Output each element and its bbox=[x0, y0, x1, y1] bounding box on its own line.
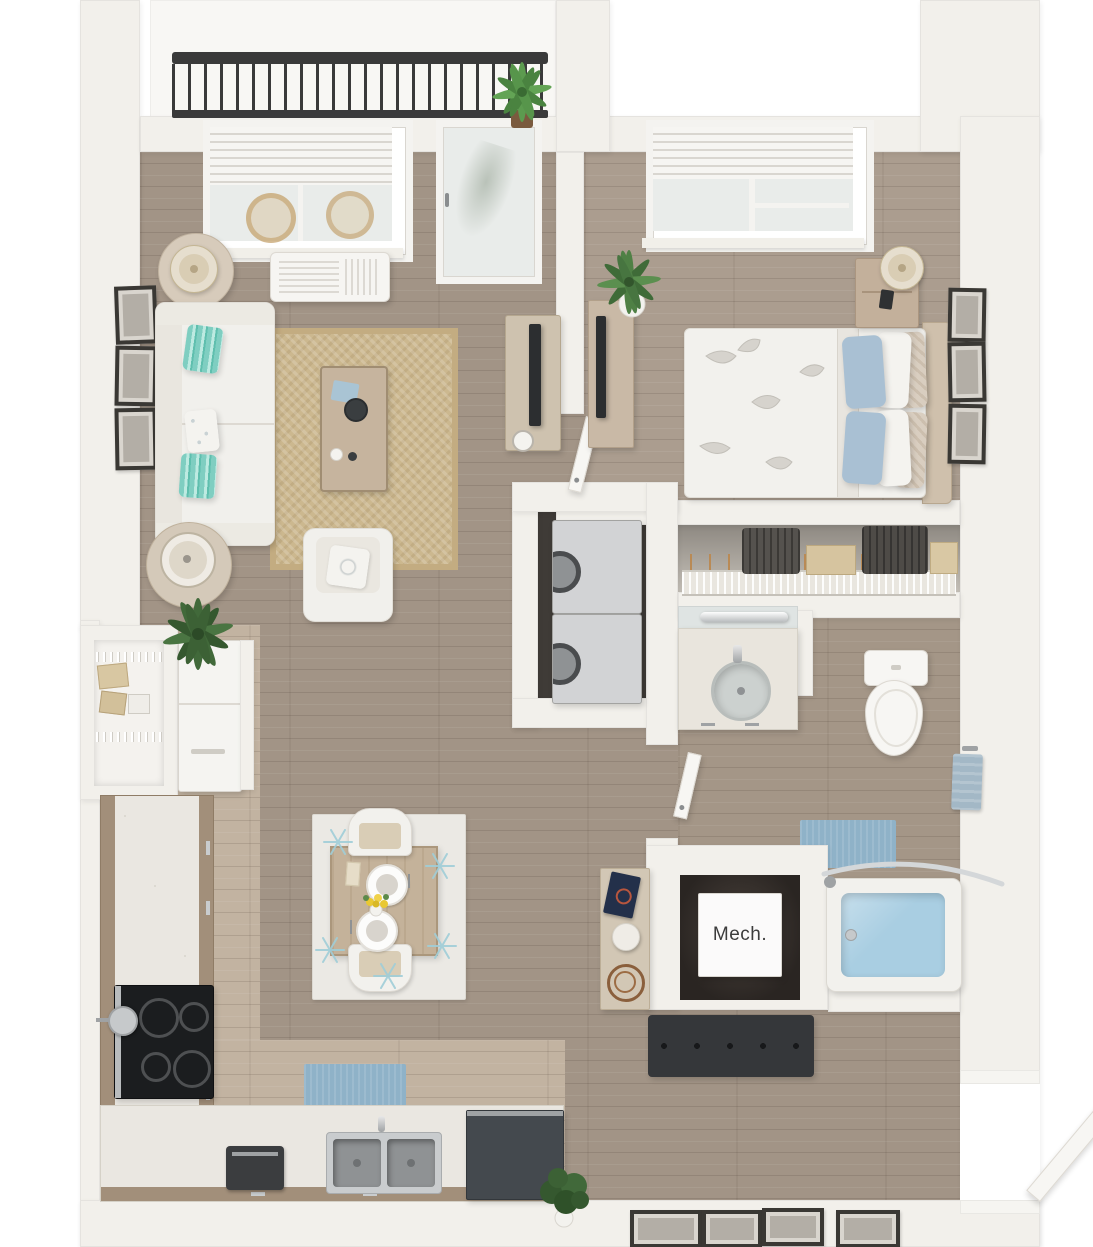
leaning-frame bbox=[762, 1208, 824, 1246]
lamp-finial bbox=[190, 265, 198, 273]
wall-balcony-right bbox=[556, 0, 610, 152]
vanity-handle bbox=[701, 723, 715, 726]
wall-frame bbox=[948, 288, 987, 343]
balcony-railing-balusters bbox=[172, 64, 548, 112]
stacked-dryer bbox=[552, 614, 642, 704]
wall-bath-west-upper bbox=[646, 482, 678, 745]
entry-jamb bbox=[960, 1200, 1040, 1214]
rattan-chair-reflection bbox=[326, 191, 374, 239]
door-handle bbox=[445, 193, 449, 207]
pan-handle bbox=[96, 1018, 110, 1022]
table-lamp-glass bbox=[160, 532, 216, 588]
leaning-frame bbox=[702, 1210, 762, 1247]
balcony-glass-door bbox=[436, 120, 542, 284]
decor-cup bbox=[348, 452, 357, 461]
chair-cushion bbox=[359, 951, 401, 977]
bathroom-vanity bbox=[678, 628, 798, 730]
vanity-handle bbox=[745, 723, 759, 726]
sofa-arm bbox=[156, 303, 274, 325]
refrigerator-divider bbox=[179, 703, 241, 705]
desk bbox=[588, 300, 634, 448]
silverware bbox=[408, 874, 410, 888]
cabinet-end-panel bbox=[240, 640, 254, 790]
ac-louvers bbox=[345, 259, 381, 295]
armchair bbox=[303, 528, 393, 622]
burner bbox=[141, 1052, 171, 1082]
dining-chair bbox=[348, 808, 412, 856]
book-emblem bbox=[614, 887, 633, 906]
sink-basin bbox=[333, 1139, 381, 1187]
cabinet-handle bbox=[251, 1192, 265, 1196]
stacked-washer bbox=[552, 520, 642, 614]
toilet-flush-button bbox=[891, 665, 901, 670]
entry-opening bbox=[960, 1082, 1040, 1202]
table-lamp bbox=[170, 245, 218, 293]
pantry-wire-shelf bbox=[96, 652, 162, 662]
dishwasher bbox=[466, 1110, 564, 1200]
washer-door bbox=[552, 551, 581, 593]
bedroom-window bbox=[646, 120, 874, 252]
bed-pillow-blue bbox=[842, 335, 887, 410]
lamp-finial bbox=[898, 264, 906, 272]
bathtub bbox=[826, 878, 962, 992]
floorplan-stage: Mech. bbox=[0, 0, 1093, 1247]
decor-cup bbox=[330, 448, 343, 461]
vanity-light-bar bbox=[700, 612, 788, 622]
chair-cushion bbox=[359, 823, 401, 849]
phone bbox=[879, 289, 895, 310]
tub-faucet bbox=[845, 929, 857, 941]
wall-frame bbox=[947, 342, 986, 403]
entry-jamb bbox=[960, 1070, 1040, 1084]
decor-clock bbox=[512, 430, 534, 452]
coffee-maker-trim bbox=[232, 1152, 278, 1156]
bedside-lamp bbox=[880, 246, 924, 290]
sofa-pillow-teal bbox=[179, 453, 218, 499]
hand-towel bbox=[951, 753, 983, 810]
entry-bench bbox=[648, 1015, 814, 1077]
decor-wire-orb bbox=[607, 964, 645, 1002]
sink-basin bbox=[387, 1139, 435, 1187]
dishwasher-trim bbox=[467, 1111, 563, 1116]
burner bbox=[179, 1002, 209, 1032]
refrigerator-handle bbox=[191, 749, 225, 754]
rattan-chair-reflection bbox=[246, 193, 296, 243]
sink-drain bbox=[407, 1159, 415, 1167]
wall-laundry-west bbox=[512, 482, 538, 728]
wall-frame bbox=[947, 404, 986, 465]
living-window-blinds bbox=[210, 127, 392, 185]
bedroom-window-glass bbox=[653, 179, 853, 231]
wall-frame bbox=[114, 408, 157, 471]
oven-front-trim bbox=[115, 986, 121, 1098]
decor-sphere bbox=[612, 923, 640, 951]
coffee-table bbox=[320, 366, 388, 492]
hanging-clothes bbox=[742, 528, 800, 574]
pan-on-stove bbox=[108, 1006, 138, 1036]
bedroom-window-sill bbox=[642, 238, 864, 248]
toilet-seat bbox=[874, 689, 918, 747]
tv bbox=[529, 324, 541, 426]
coffee-maker bbox=[226, 1146, 284, 1190]
cooktop-stove bbox=[114, 985, 214, 1099]
refrigerator bbox=[178, 640, 242, 792]
living-window-glass bbox=[210, 185, 392, 241]
burner bbox=[173, 1050, 211, 1088]
bed-pillow-blue bbox=[842, 411, 887, 486]
vanity-faucet bbox=[733, 645, 742, 663]
door-handle bbox=[679, 805, 685, 811]
place-setting-plate bbox=[366, 864, 408, 906]
door-glass-leaf-shadow bbox=[443, 137, 522, 244]
leaning-frame bbox=[836, 1210, 900, 1247]
sofa-back bbox=[156, 303, 182, 545]
sofa-pillow-white bbox=[184, 408, 220, 453]
closet-storage-box bbox=[806, 545, 856, 575]
pantry-box bbox=[97, 662, 129, 689]
wall-frame bbox=[114, 346, 157, 407]
decor-bowl bbox=[344, 398, 368, 422]
desk-monitor bbox=[596, 316, 606, 418]
place-setting-plate bbox=[356, 910, 398, 952]
orb-inner-ring bbox=[614, 971, 636, 993]
pantry-wire-shelf bbox=[96, 732, 162, 742]
balcony-railing-bottom-rail bbox=[172, 110, 548, 118]
plate-inner bbox=[366, 920, 388, 942]
double-sink bbox=[326, 1132, 442, 1194]
leaning-frame bbox=[630, 1210, 702, 1247]
ac-vent-grid bbox=[279, 261, 339, 293]
balcony-railing-top-rail bbox=[172, 52, 548, 64]
closet-storage-box bbox=[930, 542, 958, 574]
kitchen-faucet bbox=[378, 1116, 385, 1132]
lamp-finial bbox=[183, 555, 191, 563]
bedroom-window-blinds bbox=[653, 127, 853, 179]
door-handle bbox=[574, 477, 580, 483]
plate-inner bbox=[376, 874, 398, 896]
sofa-pillow-teal bbox=[182, 324, 224, 375]
napkin bbox=[345, 862, 361, 887]
dryer-door bbox=[552, 643, 581, 685]
living-window bbox=[203, 120, 413, 262]
window-mullion bbox=[298, 185, 303, 241]
vanity-sink bbox=[711, 661, 771, 721]
mech-unit: Mech. bbox=[698, 893, 782, 977]
cabinet-handle bbox=[206, 841, 210, 855]
burner bbox=[139, 998, 179, 1038]
hanging-clothes bbox=[862, 526, 928, 574]
window-slider-frame bbox=[749, 203, 849, 208]
wall-frame bbox=[114, 285, 158, 344]
towel-ring bbox=[962, 746, 978, 751]
silverware bbox=[350, 920, 352, 934]
sink-drain bbox=[737, 687, 745, 695]
pantry-box bbox=[128, 694, 150, 714]
sink-drain bbox=[353, 1159, 361, 1167]
armchair-pillow bbox=[325, 544, 370, 589]
mech-closet-label: Mech. bbox=[699, 894, 781, 976]
wall-ac-unit bbox=[270, 252, 390, 302]
pantry-box bbox=[99, 690, 127, 715]
cabinet-handle bbox=[206, 901, 210, 915]
